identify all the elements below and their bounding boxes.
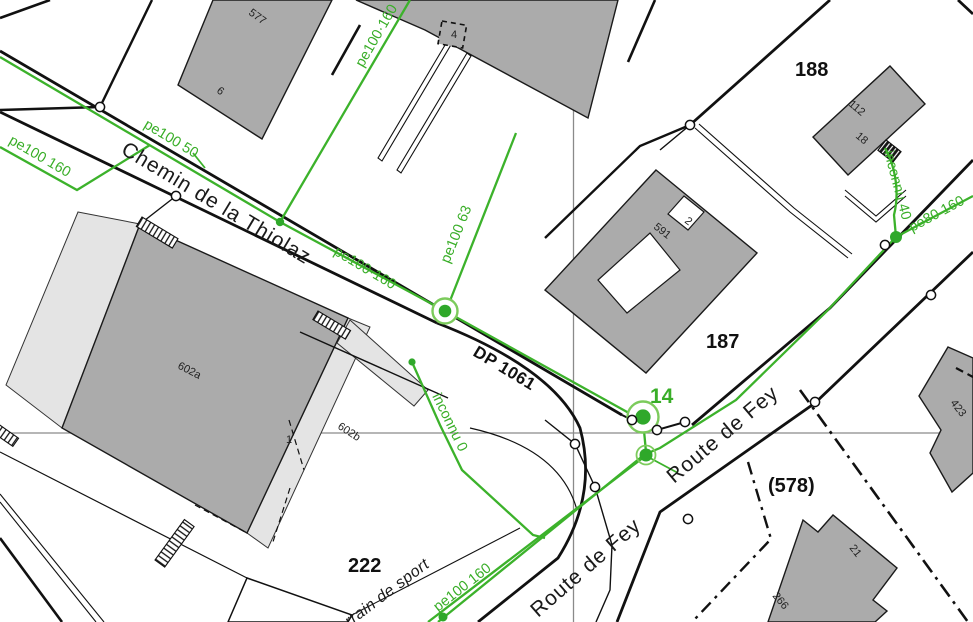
boundary-point [810, 397, 819, 406]
boundary-point [590, 482, 599, 491]
boundary-point [680, 417, 689, 426]
boundary-point [95, 102, 104, 111]
boundary-point [926, 290, 935, 299]
building-label-1: 1 [286, 434, 292, 446]
pipe-label-pe100-160-branch: pe100·160 [353, 2, 402, 70]
parcel-label-578: (578) [768, 475, 815, 497]
boundary-point [570, 439, 579, 448]
street-label-dp1061: DP 1061 [470, 342, 539, 394]
boundary-point [627, 415, 636, 424]
building-outline-bottom [228, 578, 352, 622]
pipe-label-inconnu-40: inconnu 40 [880, 149, 914, 222]
boundary-point [880, 240, 889, 249]
boundary-point [683, 514, 692, 523]
junction-node[interactable] [890, 231, 902, 243]
junction-kerb-inner [470, 428, 577, 510]
stairs-icon [0, 421, 19, 446]
junction-node[interactable] [276, 218, 284, 226]
junction-node[interactable] [640, 449, 653, 462]
boundary-point [652, 425, 661, 434]
pipe-label-pe100-160-bottom: pe100 160 [431, 560, 495, 615]
valve-node[interactable] [439, 305, 452, 318]
map-canvas[interactable]: Chemin de la Thiolaz DP 1061 Route de Fe… [0, 0, 973, 622]
junction-node[interactable] [408, 358, 415, 365]
parcel-label-187: 187 [706, 331, 739, 353]
map-viewport[interactable]: Chemin de la Thiolaz DP 1061 Route de Fe… [0, 0, 973, 622]
boundary-point [685, 120, 694, 129]
pipe-label-pe100-160-main: pe100·160 [331, 244, 399, 293]
valve-node[interactable] [635, 409, 650, 424]
building-label-602b: 602b [335, 420, 362, 443]
pipe-label-pe100-63: pe100 63 [438, 203, 475, 265]
parcel-label-188: 188 [795, 59, 828, 81]
stairs-icon [155, 520, 194, 568]
parcel-label-14: 14 [650, 385, 674, 408]
parcel-label-222: 222 [348, 555, 381, 577]
building-423[interactable] [919, 347, 973, 492]
building-112[interactable] [813, 66, 925, 175]
building-label-4: 4 [451, 29, 457, 41]
